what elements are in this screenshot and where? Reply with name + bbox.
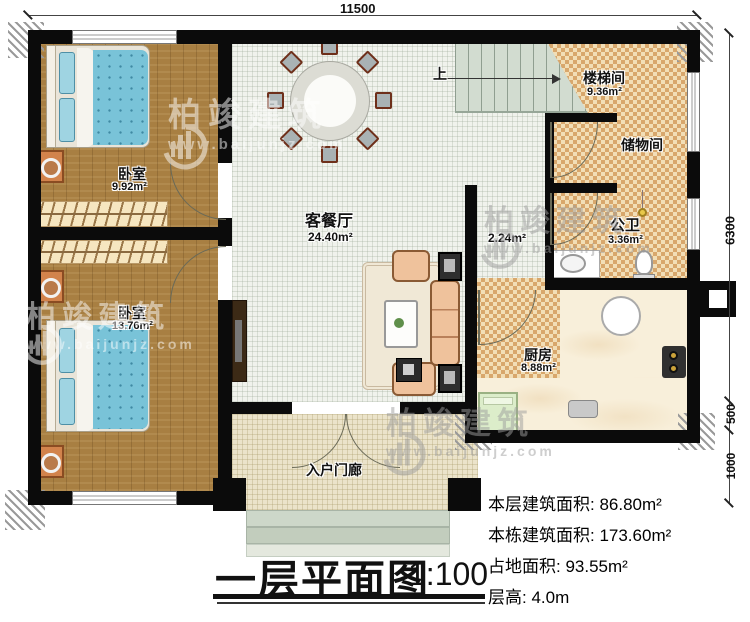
- window-bathroom-right: [687, 198, 700, 250]
- info-footprint-area: 占地面积: 93.55m²: [488, 551, 748, 582]
- flue-bump-out: [700, 281, 736, 317]
- window-bedroom2-bottom: [72, 491, 177, 505]
- side-table-top: [438, 252, 462, 281]
- watermark: 柏竣建筑 www.baijunjz.com: [158, 88, 345, 153]
- watermark: 柏竣建筑 www.baijunjz.com: [476, 196, 653, 256]
- title-underline-thin: [217, 602, 485, 604]
- wall-storage-top: [545, 113, 617, 122]
- room-area-bedroom1: 9.92m²: [112, 182, 147, 193]
- stair-direction-arrow: [552, 74, 561, 84]
- kitchen-round-table: [601, 296, 641, 336]
- room-label-kitchen: 厨房: [524, 348, 552, 362]
- floor-plan: 卧室 9.92m² 卧室 13.76m² 客餐厅 24.40m² 楼梯间 9.3…: [0, 0, 750, 622]
- pillow: [59, 378, 75, 425]
- table-plant: [394, 318, 404, 328]
- stove-burner: [669, 351, 678, 360]
- stove-burner: [669, 364, 678, 373]
- wall-exterior-left: [28, 30, 41, 505]
- dimension-right-height: 6300: [723, 201, 738, 261]
- stairs-up-label: 上: [433, 67, 447, 81]
- porch-column-left: [213, 478, 246, 511]
- window-stairwell-right: [687, 72, 700, 152]
- title-underline-thick: [213, 594, 485, 599]
- tv-screen: [235, 320, 242, 362]
- dining-chair: [375, 92, 392, 109]
- window-bedroom1-top: [72, 30, 177, 44]
- info-floor-height: 层高: 4.0m: [488, 582, 748, 613]
- kitchen-sink: [568, 400, 598, 418]
- bath-sink: [560, 254, 586, 273]
- room-label-living-dining: 客餐厅: [305, 214, 353, 230]
- wall-bath-bottom: [545, 278, 700, 290]
- room-area-stairwell: 9.36m²: [587, 87, 622, 98]
- room-label-storage: 储物间: [621, 138, 663, 152]
- porch-step-2: [246, 527, 450, 544]
- dimension-right-porch: 1000: [724, 436, 738, 496]
- watermark: 柏竣建筑 www.baijunjz.com: [378, 398, 555, 459]
- door-leaf-storage: [550, 122, 552, 178]
- bed-quilt: [93, 50, 148, 145]
- side-table-bottom: [438, 364, 462, 393]
- pillow: [59, 98, 75, 142]
- watermark: 柏竣建筑 www.baijunjz.com: [18, 292, 195, 352]
- info-floor-area: 本层建筑面积: 86.80m²: [488, 489, 748, 520]
- room-area-kitchen: 8.88m²: [521, 363, 556, 374]
- dimension-top-width: 11500: [340, 1, 375, 16]
- wall-bedroom-living-b: [218, 218, 232, 246]
- sofa-main: [430, 280, 460, 366]
- porch-step-1: [246, 510, 450, 527]
- room-label-porch: 入户门廊: [306, 463, 362, 477]
- bed-headboard: [47, 46, 56, 147]
- area-info-block: 本层建筑面积: 86.80m² 本栋建筑面积: 173.60m² 占地面积: 9…: [488, 489, 748, 613]
- room-label-stairwell: 楼梯间: [583, 71, 625, 85]
- room-area-living-dining: 24.40m²: [308, 231, 353, 243]
- info-building-area: 本栋建筑面积: 173.60m²: [488, 520, 748, 551]
- armchair-top: [392, 250, 430, 282]
- door-leaf-kitchen: [478, 290, 480, 345]
- room-label-bedroom1: 卧室: [118, 167, 146, 181]
- wall-living-bottom-left: [218, 402, 292, 414]
- wall-bath-top: [545, 183, 617, 193]
- dimension-right-step: 500: [724, 384, 738, 444]
- porch-column-right: [448, 478, 481, 511]
- drawing-scale: 1:100: [408, 556, 488, 593]
- media-screen: [403, 364, 414, 375]
- wall-between-bedrooms: [28, 227, 218, 240]
- stair-direction-line: [446, 78, 554, 79]
- bed-1: [46, 45, 150, 148]
- wardrobe-bedroom1: [32, 201, 168, 227]
- wardrobe-bedroom2: [32, 240, 168, 264]
- pillow: [59, 52, 75, 94]
